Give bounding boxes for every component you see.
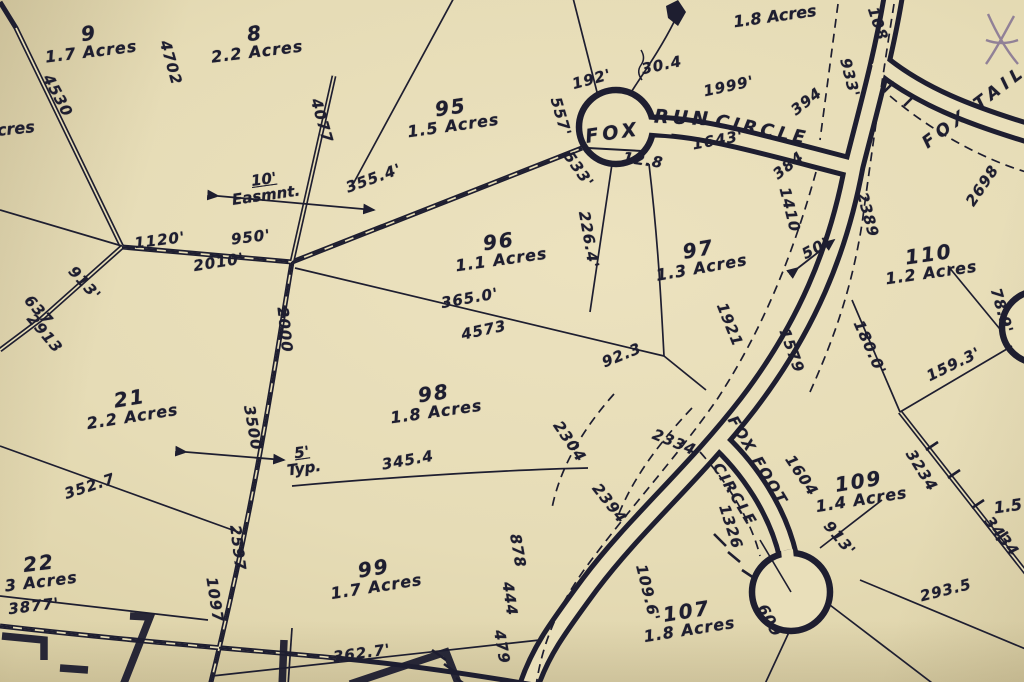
dimension-label: 444: [499, 581, 519, 617]
road-mouth-fox-foot: [787, 550, 791, 588]
pen-scribble-mark: [986, 14, 1018, 64]
dimension-label: 2000: [274, 306, 294, 353]
road-main: [528, 0, 894, 682]
line-3527: [0, 446, 238, 532]
partial-edge-label: 1.5: [993, 497, 1023, 518]
line-3454: [292, 468, 588, 486]
line-4702: [352, 0, 456, 186]
line-365: [295, 268, 664, 356]
annotation-label: 5' Typ.: [284, 443, 322, 479]
line-923: [664, 356, 706, 390]
line-left-lot: [0, 210, 122, 246]
street-name-label: RUN: [654, 108, 713, 131]
ink-blob: [666, 0, 686, 26]
typ-arrow: [186, 452, 284, 460]
plat-map-photo: FOXRUNCIRCLEFOX TAILFOX FOOTCIRCLE 9 1.7…: [0, 0, 1024, 682]
line-609: [826, 602, 936, 682]
